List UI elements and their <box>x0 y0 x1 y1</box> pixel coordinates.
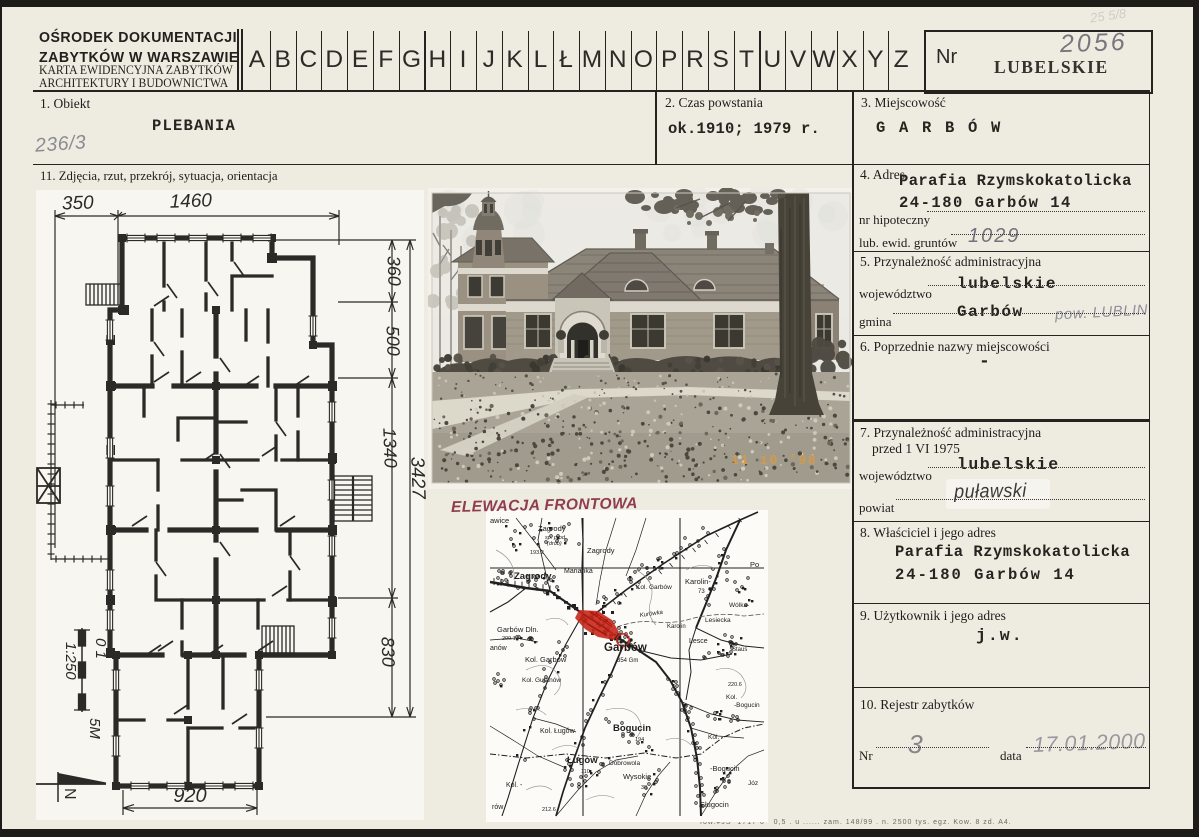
svg-text:11 10 ’98: 11 10 ’98 <box>731 454 817 469</box>
svg-text:73: 73 <box>698 589 705 595</box>
svg-text:rów: rów <box>492 804 504 811</box>
svg-text:anów: anów <box>490 645 508 652</box>
svg-text:Wysokie: Wysokie <box>623 772 651 781</box>
svg-text:350: 350 <box>62 192 95 214</box>
svg-text:110: 110 <box>581 769 590 775</box>
svg-text:Józ: Józ <box>748 780 758 787</box>
svg-text:360: 360 <box>383 255 404 286</box>
svg-text:Kol. -: Kol. - <box>708 734 723 741</box>
svg-text:1340: 1340 <box>379 427 400 468</box>
svg-text:Lesce: Lesce <box>689 638 708 645</box>
svg-text:0 1: 0 1 <box>92 638 109 659</box>
svg-text:212.6: 212.6 <box>542 807 556 813</box>
svg-text:194: 194 <box>635 737 644 743</box>
svg-text:Kol. Garbów: Kol. Garbów <box>636 584 672 591</box>
svg-text:Sługocin: Sługocin <box>700 800 729 809</box>
svg-text:Kol. Gutanów: Kol. Gutanów <box>522 677 561 684</box>
svg-text:Staus: Staus <box>732 647 747 653</box>
svg-text:Ługów: Ługów <box>567 755 598 766</box>
svg-text:1:250: 1:250 <box>62 642 79 680</box>
svg-text:Bogucin: Bogucin <box>613 723 651 734</box>
svg-text:354 Gm: 354 Gm <box>617 658 638 664</box>
svg-text:Garbów Dln.: Garbów Dln. <box>497 625 539 634</box>
svg-text:Lesiecka: Lesiecka <box>705 617 731 624</box>
svg-text:Marianka: Marianka <box>564 568 593 575</box>
svg-text:30: 30 <box>641 785 647 791</box>
svg-text:3427: 3427 <box>406 456 428 500</box>
svg-text:-Bogucin: -Bogucin <box>710 764 740 773</box>
svg-text:Zagrody: Zagrody <box>587 546 615 555</box>
svg-text:(drób): (drób) <box>547 541 562 547</box>
svg-text:Karolin-: Karolin- <box>685 577 711 586</box>
svg-text:Kol. Garbów: Kol. Garbów <box>525 655 567 664</box>
svg-text:-Bogucin: -Bogucin <box>734 702 760 709</box>
svg-text:220.6: 220.6 <box>728 682 742 688</box>
svg-text:Karolin: Karolin <box>667 624 686 630</box>
svg-text:193.2: 193.2 <box>530 550 544 556</box>
svg-text:Wólka-: Wólka- <box>729 602 749 609</box>
svg-text:N: N <box>61 788 78 800</box>
svg-text:1460: 1460 <box>169 190 212 212</box>
svg-text:Kol. Ługów: Kol. Ługów <box>540 728 576 735</box>
svg-text:209.1: 209.1 <box>502 636 516 642</box>
svg-text:Kol. -: Kol. - <box>506 782 523 789</box>
svg-text:5M: 5M <box>86 718 103 739</box>
svg-text:Kol.: Kol. <box>726 694 737 701</box>
svg-text:Zagrody: Zagrody <box>538 524 566 533</box>
svg-text:Garbów: Garbów <box>604 642 647 654</box>
svg-text:Dobrowola: Dobrowola <box>609 760 640 767</box>
svg-text:Po: Po <box>750 560 759 569</box>
svg-text:500: 500 <box>382 325 403 356</box>
svg-text:Zagrody: Zagrody <box>514 571 552 582</box>
svg-text:830: 830 <box>377 636 398 667</box>
svg-text:awice: awice <box>490 516 509 525</box>
